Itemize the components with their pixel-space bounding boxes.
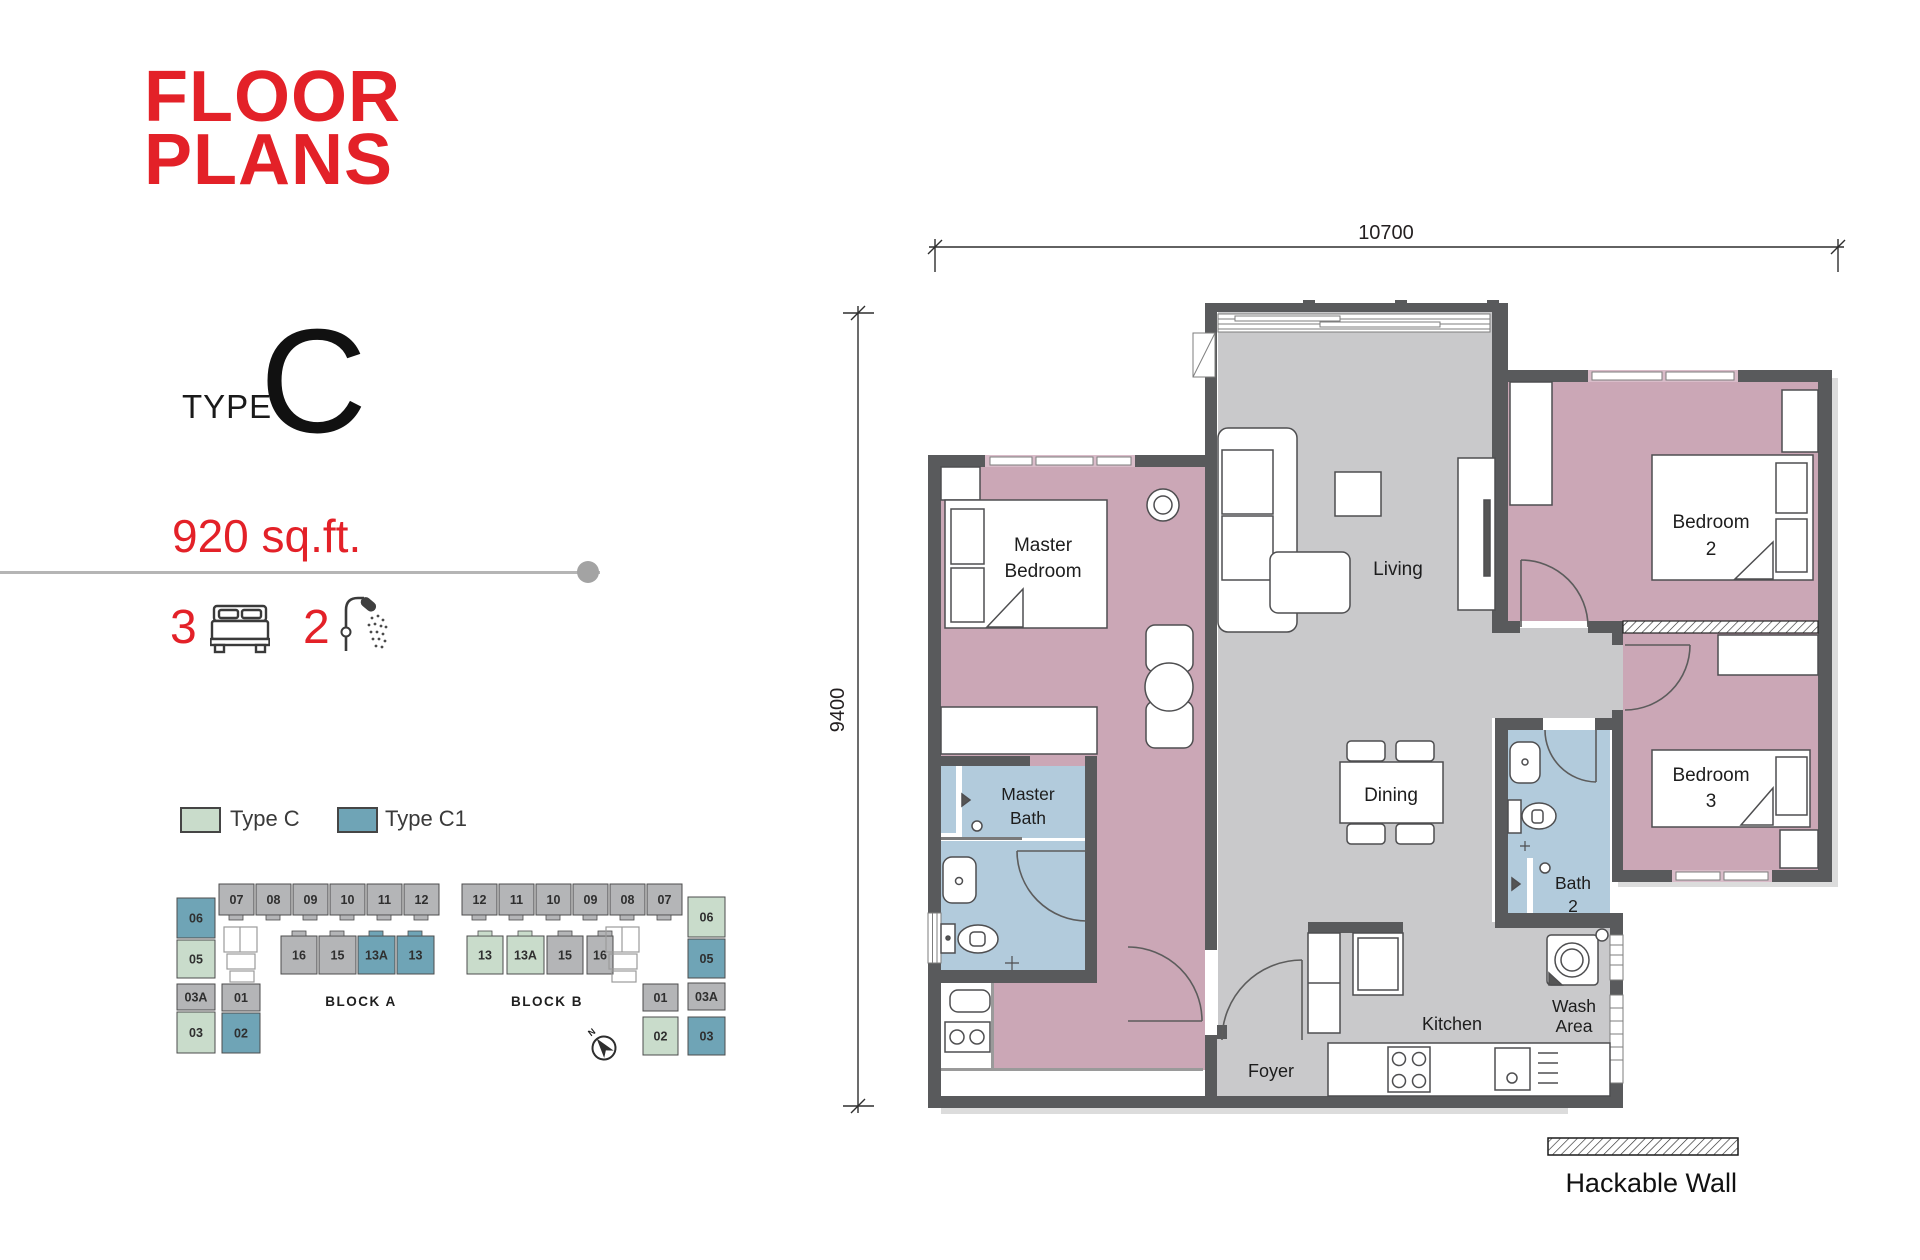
floor-plan: 10700 9400 MasterBedroomLivingBedroom2Be… bbox=[827, 222, 1845, 1198]
block-unit-label: 02 bbox=[234, 1027, 248, 1041]
block-unit-notch bbox=[509, 915, 523, 920]
block-unit-notch bbox=[598, 931, 612, 936]
block-unit-notch bbox=[518, 931, 532, 936]
block-unit-notch bbox=[330, 931, 344, 936]
block-unit-label: 10 bbox=[341, 893, 355, 907]
block-unit-label: 06 bbox=[700, 911, 714, 925]
block-unit-label: 08 bbox=[267, 893, 281, 907]
room-label-foyer: Foyer bbox=[1248, 1061, 1294, 1081]
master-shower-floor bbox=[941, 766, 957, 833]
block-unit-label: 12 bbox=[473, 893, 487, 907]
block-unit-label: 07 bbox=[658, 893, 672, 907]
block-unit-label: 05 bbox=[700, 952, 714, 966]
block-unit-label: 13A bbox=[365, 949, 388, 963]
block-unit-label: 16 bbox=[593, 949, 607, 963]
room-label-kitchen: Kitchen bbox=[1422, 1014, 1482, 1034]
block-unit-notch bbox=[546, 915, 560, 920]
room-label-dining: Dining bbox=[1364, 785, 1418, 806]
hackable-wall bbox=[1623, 621, 1818, 633]
block-unit-notch bbox=[620, 915, 634, 920]
floor-plan-scene: 070809101112161513A13060503A030102121110… bbox=[0, 0, 1920, 1260]
block-unit-label: 09 bbox=[584, 893, 598, 907]
room-label-wash-area: WashArea bbox=[1552, 996, 1596, 1036]
dimension-width: 10700 bbox=[1358, 222, 1414, 244]
block-unit-notch bbox=[408, 931, 422, 936]
block-unit-notch bbox=[292, 931, 306, 936]
block-diagrams: 070809101112161513A13060503A030102121110… bbox=[177, 884, 725, 1064]
block-unit-label: 16 bbox=[292, 949, 306, 963]
block-unit-notch bbox=[558, 931, 572, 936]
block-a-label: BLOCK A bbox=[325, 994, 397, 1009]
compass-icon: N bbox=[580, 1021, 621, 1064]
block-unit-notch bbox=[340, 915, 354, 920]
block-unit-label: 03A bbox=[695, 990, 718, 1004]
hallway-floor bbox=[1492, 628, 1623, 718]
hackable-wall-label: Hackable Wall bbox=[1565, 1168, 1737, 1198]
dimension-height: 9400 bbox=[827, 688, 849, 733]
block-unit-notch bbox=[266, 915, 280, 920]
block-unit-label: 03A bbox=[185, 991, 208, 1005]
block-unit-label: 01 bbox=[234, 991, 248, 1005]
block-unit-label: 08 bbox=[621, 893, 635, 907]
block-unit-label: 07 bbox=[230, 893, 244, 907]
block-unit-label: 02 bbox=[654, 1030, 668, 1044]
hackable-wall-legend: Hackable Wall bbox=[1548, 1138, 1738, 1198]
block-unit-notch bbox=[377, 915, 391, 920]
block-unit-notch bbox=[303, 915, 317, 920]
block-b-label: BLOCK B bbox=[511, 994, 583, 1009]
block-unit-label: 15 bbox=[558, 949, 572, 963]
block-unit-label: 06 bbox=[189, 912, 203, 926]
block-unit-label: 15 bbox=[331, 949, 345, 963]
compass-north-label: N bbox=[586, 1026, 597, 1038]
block-unit-label: 11 bbox=[378, 893, 391, 907]
block-unit-label: 09 bbox=[304, 893, 318, 907]
block-unit-notch bbox=[657, 915, 671, 920]
block-unit-notch bbox=[229, 915, 243, 920]
block-unit-notch bbox=[478, 931, 492, 936]
block-unit-label: 12 bbox=[415, 893, 429, 907]
block-unit-notch bbox=[472, 915, 486, 920]
block-unit-notch bbox=[369, 931, 383, 936]
block-unit-label: 10 bbox=[547, 893, 561, 907]
block-unit-notch bbox=[414, 915, 428, 920]
block-unit-label: 11 bbox=[510, 893, 523, 907]
block-unit-label: 13A bbox=[514, 949, 537, 963]
block-unit-notch bbox=[583, 915, 597, 920]
block-unit-label: 03 bbox=[189, 1026, 203, 1040]
block-unit-label: 01 bbox=[654, 991, 668, 1005]
block-a-core bbox=[224, 927, 257, 982]
block-unit-label: 13 bbox=[478, 949, 492, 963]
block-unit-label: 05 bbox=[189, 953, 203, 967]
block-unit-label: 03 bbox=[700, 1030, 714, 1044]
block-unit-label: 13 bbox=[409, 949, 423, 963]
room-label-living: Living bbox=[1373, 559, 1423, 580]
